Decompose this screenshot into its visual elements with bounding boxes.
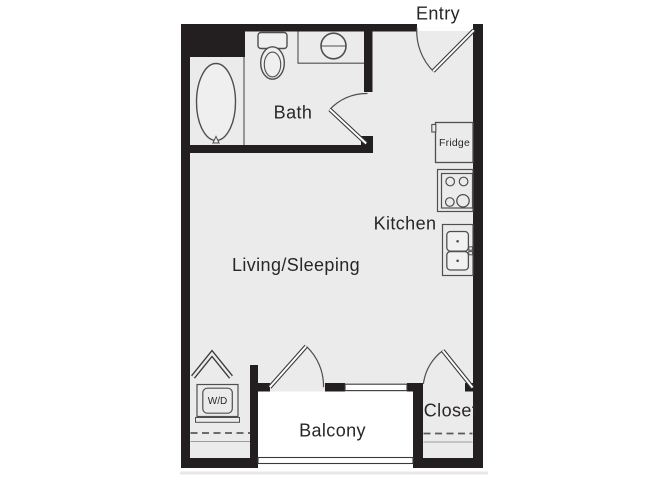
balcony-label: Balcony	[299, 421, 366, 441]
floorplan-svg: Entry Bath Kitchen Living/Sleeping Balco…	[0, 0, 670, 480]
fridge-label: Fridge	[439, 137, 470, 149]
kitchen-label: Kitchen	[374, 214, 437, 234]
washer-dryer-label: W/D	[208, 396, 227, 407]
balcony-rail-icon	[258, 458, 413, 464]
closet-label: Closet	[424, 401, 477, 421]
wall-bath-bottom	[190, 145, 363, 153]
wall-wd-closet-right	[250, 365, 258, 458]
wall-closet-left	[413, 383, 423, 458]
sink-faucet-icon	[469, 251, 473, 254]
wall-left	[181, 24, 190, 468]
wall-balconydoor-stub-left	[258, 383, 270, 392]
living-sleeping-label: Living/Sleeping	[232, 255, 360, 275]
washer-dryer-ledge	[196, 418, 240, 423]
bathtub-icon	[197, 64, 236, 141]
floorplan-canvas: Entry Bath Kitchen Living/Sleeping Balco…	[0, 0, 670, 480]
sink-drain-dot	[456, 260, 459, 263]
wall-between-door-window	[325, 383, 345, 392]
sink-faucet-icon	[469, 247, 473, 250]
wall-top	[181, 24, 417, 32]
plan-shadow	[180, 472, 488, 475]
sink-drain-dot	[456, 240, 459, 243]
wall-bottom-right	[413, 458, 483, 468]
window-icon	[345, 384, 407, 390]
wall-bath-right	[364, 31, 373, 92]
wall-duct-mass	[190, 31, 245, 57]
entry-label: Entry	[416, 4, 460, 24]
fridge-handle-icon	[432, 125, 436, 133]
wall-bottom-left	[181, 458, 258, 468]
bath-label: Bath	[274, 103, 313, 123]
